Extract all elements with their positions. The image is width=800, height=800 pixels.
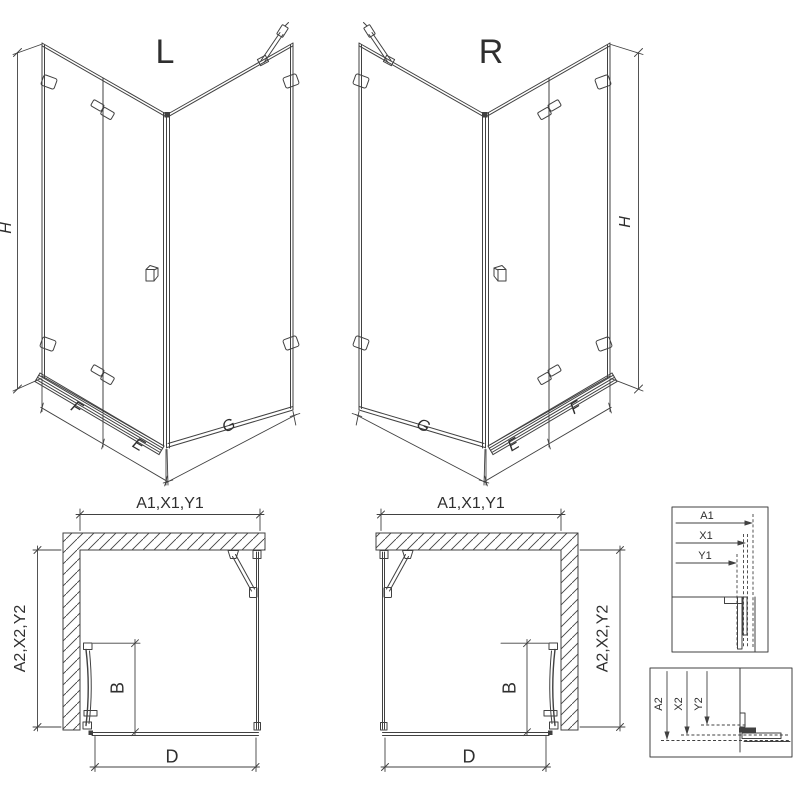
plan-view-l-variant: A1,X1,Y1 A2,X2,Y2 B D	[12, 495, 265, 772]
variant-label-r: R	[479, 33, 504, 71]
wall-hatch	[376, 533, 578, 730]
dimension-width-a1: A1,X1,Y1	[377, 495, 565, 531]
dimension-depth-a2: A2,X2,Y2	[12, 546, 61, 731]
plan-view-r-variant: A1,X1,Y1 A2,X2,Y2 B D	[376, 495, 625, 772]
side-panel-dim-label: G	[219, 416, 238, 437]
wall-hatch	[63, 533, 265, 730]
door-dim-label: E	[505, 435, 523, 455]
width-dim-label: A1,X1,Y1	[437, 495, 505, 512]
height-dim-label: H	[617, 216, 634, 228]
dimension-side-width: G	[163, 412, 300, 486]
depth-dim-label: A2,X2,Y2	[12, 605, 29, 673]
width-dim-label: A1,X1,Y1	[136, 495, 204, 512]
offset-x2-label: X2	[673, 697, 685, 710]
dimension-height: H	[0, 45, 41, 394]
wall-profile-section	[725, 597, 756, 652]
dimension-depth-a2: A2,X2,Y2	[580, 546, 625, 731]
glass-panels	[42, 43, 293, 448]
iso-view-r-variant: R	[352, 23, 643, 486]
dimension-width-a1: A1,X1,Y1	[76, 495, 264, 531]
dimension-opening-d: D	[381, 737, 551, 772]
dimension-door-b: B	[93, 640, 140, 736]
offset-x1-label: X1	[699, 530, 712, 542]
door-width-dim-label: B	[500, 682, 520, 694]
height-dim-label: H	[0, 222, 15, 234]
iso-view-l-variant: L	[0, 23, 300, 486]
technical-drawing-page: L	[0, 0, 800, 800]
door-dim-label: E	[129, 435, 147, 455]
dimension-side-width: G	[352, 412, 489, 486]
door-handle-icon	[146, 266, 158, 282]
opening-dim-label: D	[166, 747, 179, 767]
side-panel-dim-label: G	[414, 416, 433, 437]
shower-enclosure-technical-drawing: L	[0, 0, 800, 800]
offset-a2-label: A2	[653, 697, 665, 710]
support-bar-icon	[364, 23, 395, 66]
door-handle-icon	[494, 266, 506, 282]
dimension-opening-d: D	[90, 737, 260, 772]
depth-measure-detail: A2 X2 Y2	[650, 668, 792, 757]
offset-a1-label: A1	[700, 510, 713, 522]
open-door	[83, 643, 97, 735]
dimension-height: H	[611, 45, 643, 394]
offset-y1-label: Y1	[698, 550, 711, 562]
support-bar-icon	[257, 23, 288, 66]
variant-label-l: L	[156, 33, 175, 71]
glass-panels	[359, 43, 610, 448]
door-width-dim-label: B	[108, 682, 128, 694]
dimension-door-b: B	[500, 640, 549, 736]
width-measure-detail: A1 X1 Y1	[672, 507, 768, 652]
offset-y2-label: Y2	[693, 697, 705, 710]
open-door	[544, 643, 558, 735]
fixed-panel-dim-label: F	[68, 398, 86, 418]
fixed-panel-dim-label: F	[567, 398, 585, 418]
dimension-front-widths: F E	[41, 379, 168, 486]
depth-dim-label: A2,X2,Y2	[595, 605, 612, 673]
wall-profile-section	[739, 713, 790, 742]
dimension-front-widths: F E	[484, 379, 611, 486]
opening-dim-label: D	[463, 747, 476, 767]
